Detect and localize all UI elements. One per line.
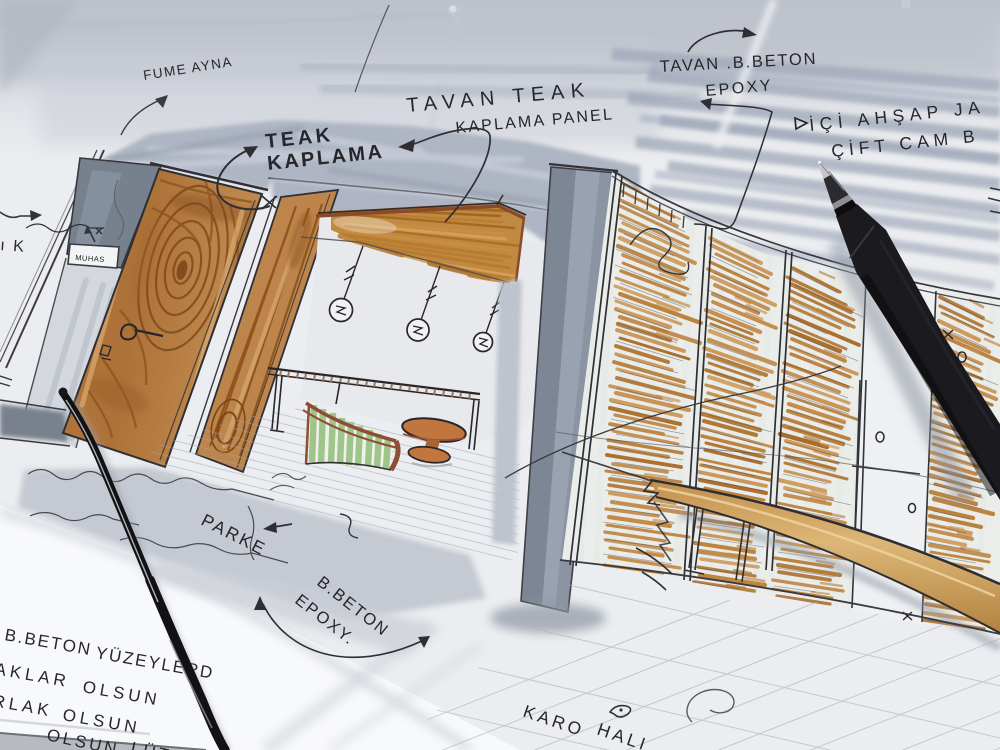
svg-text:ı K: ı K bbox=[0, 237, 26, 256]
